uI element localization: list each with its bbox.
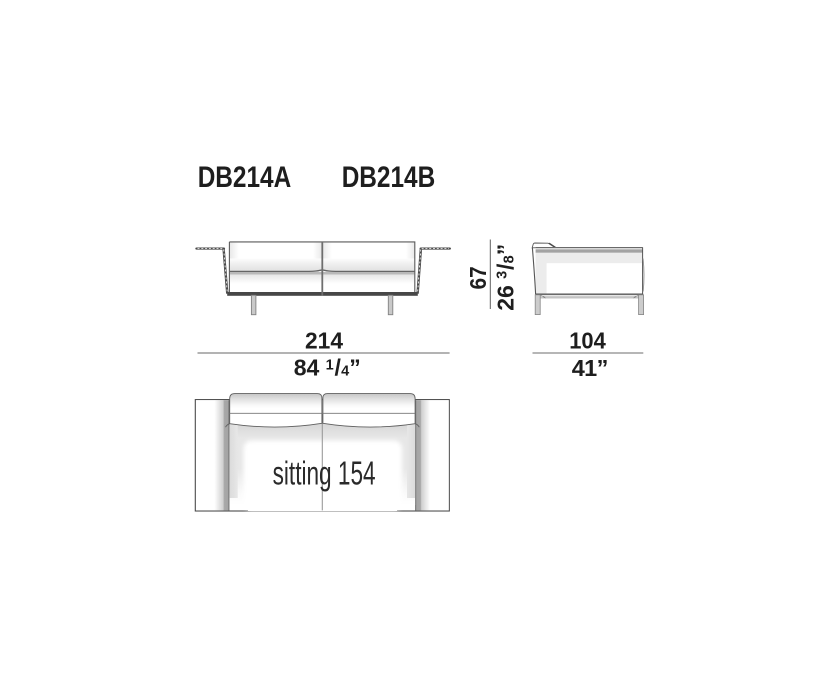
svg-text:104: 104 (569, 328, 606, 354)
svg-text:sitting 154: sitting 154 (273, 455, 376, 492)
svg-text:DB214A: DB214A (198, 162, 292, 194)
svg-text:214: 214 (305, 328, 343, 354)
svg-text:41”: 41” (572, 355, 608, 381)
svg-text:67: 67 (465, 266, 491, 289)
svg-text:DB214B: DB214B (342, 162, 436, 194)
